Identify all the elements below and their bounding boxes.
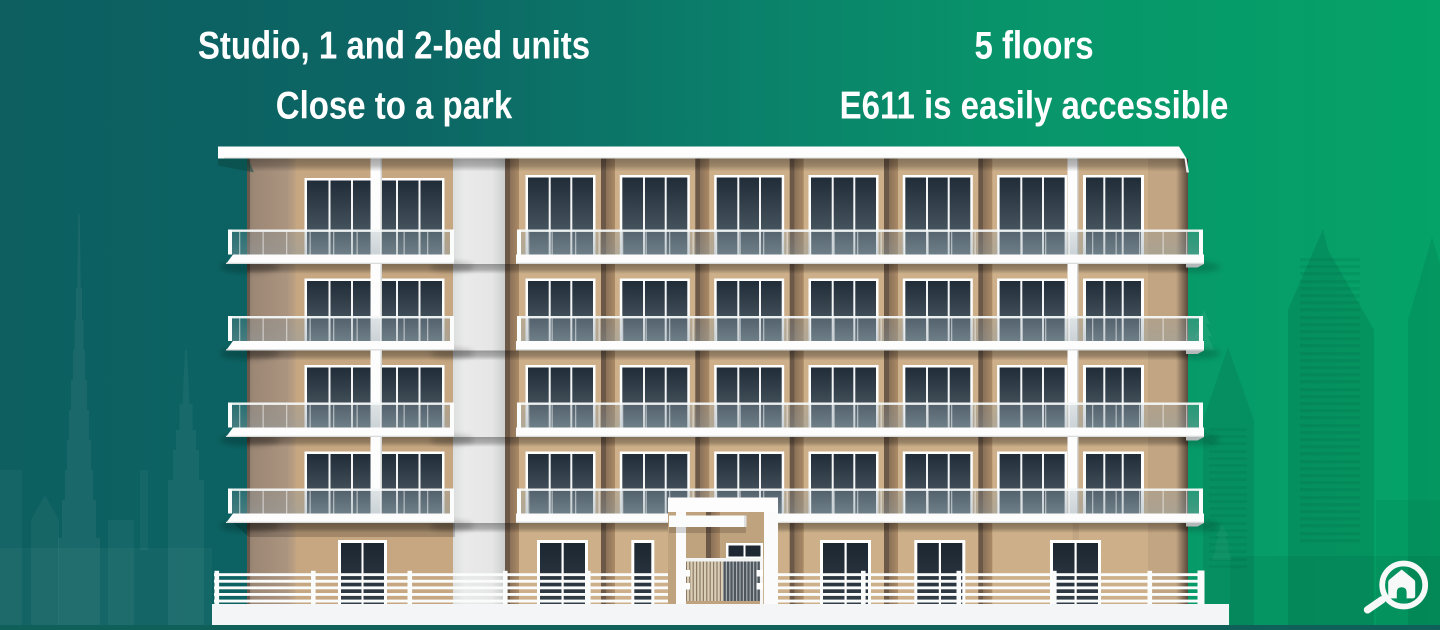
svg-text:5 floors: 5 floors xyxy=(974,23,1093,67)
svg-text:E611 is easily accessible: E611 is easily accessible xyxy=(840,83,1229,127)
svg-text:Studio, 1 and 2-bed units: Studio, 1 and 2-bed units xyxy=(198,23,590,67)
svg-text:Close to a park: Close to a park xyxy=(276,83,513,127)
